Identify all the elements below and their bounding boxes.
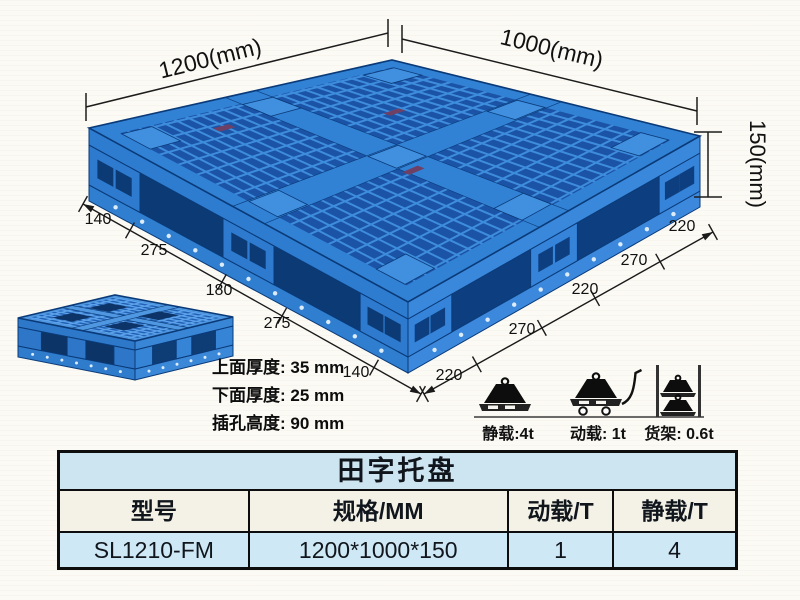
dim-height-label: 150(mm) (745, 120, 770, 208)
header-cell-model: 型号 (60, 491, 248, 531)
chain-label: 220 (436, 367, 463, 384)
rack-load-label: 货架: 0.6t (634, 420, 724, 440)
spec-table-title: 田字托盘 (60, 453, 735, 489)
rack-load-icon (656, 365, 701, 417)
static-load-icon (479, 378, 531, 411)
thickness-note-bottom: 下面厚度: 25 mm (212, 382, 402, 410)
chain-label: 140 (85, 211, 112, 228)
chain-label: 180 (206, 282, 233, 299)
product-spec-sheet: 1200(mm) 1000(mm) 150(mm) 140 275 180 27… (0, 0, 800, 600)
chain-label: 270 (621, 252, 648, 269)
dimension-height: 150(mm) (694, 120, 770, 208)
static-load-label: 静载:4t (468, 420, 548, 440)
header-cell-size: 规格/MM (248, 491, 507, 531)
dynamic-load-label: 动载: 1t (558, 420, 638, 440)
thickness-note-top: 上面厚度: 35 mm (212, 354, 402, 382)
thickness-note-fork: 插孔高度: 90 mm (212, 410, 402, 438)
thickness-notes: 上面厚度: 35 mm 下面厚度: 25 mm 插孔高度: 90 mm (212, 354, 402, 438)
load-capacity-icons (474, 365, 704, 417)
spec-table-data-row: SL1210-FM 1200*1000*150 1 4 (60, 531, 735, 567)
spec-table: 田字托盘 型号 规格/MM 动载/T 静载/T SL1210-FM 1200*1… (57, 450, 738, 570)
spec-table-header-row: 型号 规格/MM 动载/T 静载/T (60, 489, 735, 531)
header-cell-dynamic-load: 动载/T (507, 491, 612, 531)
data-cell-model: SL1210-FM (60, 533, 248, 567)
header-cell-static-load: 静载/T (612, 491, 735, 531)
chain-label: 220 (669, 218, 696, 235)
data-cell-dynamic-load: 1 (507, 533, 612, 567)
chain-label: 275 (264, 315, 291, 332)
data-cell-static-load: 4 (612, 533, 735, 567)
data-cell-size: 1200*1000*150 (248, 533, 507, 567)
chain-label: 270 (509, 321, 536, 338)
chain-label: 220 (572, 281, 599, 298)
dynamic-load-icon (570, 370, 642, 415)
chain-label: 275 (141, 242, 168, 259)
inset-pallet-view (18, 295, 233, 380)
